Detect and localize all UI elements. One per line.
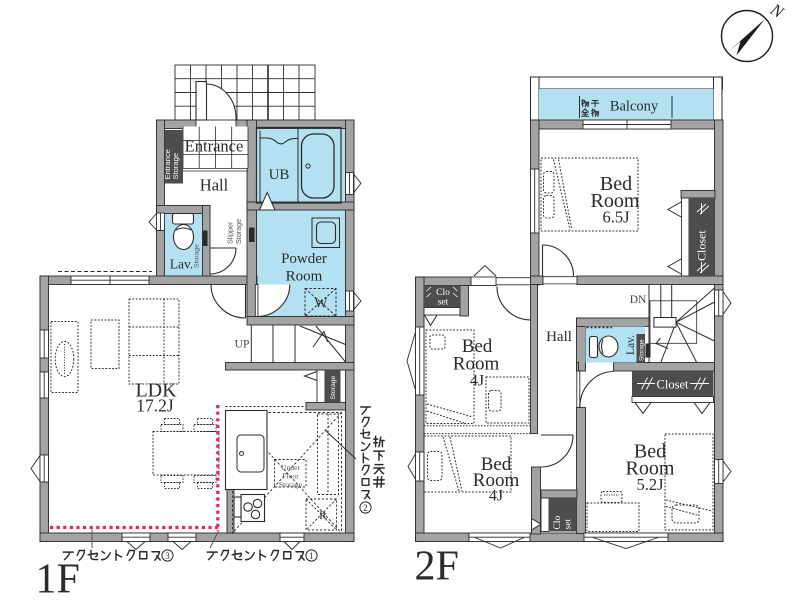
svg-text:Closet: Closet bbox=[657, 378, 689, 392]
svg-text:set: set bbox=[564, 519, 574, 530]
svg-text:Room: Room bbox=[286, 269, 323, 285]
svg-text:6.5J: 6.5J bbox=[602, 208, 630, 227]
svg-text:UP: UP bbox=[235, 339, 250, 351]
svg-text:Entrance: Entrance bbox=[185, 137, 244, 156]
svg-text:R: R bbox=[319, 510, 327, 522]
svg-text:Storage: Storage bbox=[639, 339, 646, 361]
svg-text:Storage: Storage bbox=[234, 219, 243, 244]
svg-text:Closet: Closet bbox=[695, 230, 709, 261]
svg-text:4J: 4J bbox=[470, 373, 484, 390]
svg-text:UB: UB bbox=[269, 167, 290, 183]
svg-text:Balcony: Balcony bbox=[610, 99, 659, 115]
svg-text:1F: 1F bbox=[36, 557, 80, 600]
svg-text:Storage: Storage bbox=[171, 153, 180, 180]
svg-text:W: W bbox=[315, 296, 328, 311]
svg-text:3: 3 bbox=[165, 551, 170, 561]
svg-text:DN: DN bbox=[630, 294, 647, 306]
svg-text:Clo: Clo bbox=[553, 516, 563, 530]
svg-text:1: 1 bbox=[309, 551, 314, 561]
svg-text:17.2J: 17.2J bbox=[136, 396, 174, 416]
svg-text:set: set bbox=[438, 298, 449, 308]
svg-text:Lav.: Lav. bbox=[170, 257, 194, 272]
svg-text:Hall: Hall bbox=[200, 176, 229, 195]
svg-text:Storage: Storage bbox=[279, 480, 303, 489]
svg-text:Lav.: Lav. bbox=[625, 335, 637, 355]
svg-text:Storage: Storage bbox=[194, 244, 201, 268]
svg-text:2: 2 bbox=[363, 503, 368, 513]
svg-text:Clo: Clo bbox=[436, 288, 450, 298]
svg-text:Hall: Hall bbox=[546, 329, 572, 345]
svg-text:Storage: Storage bbox=[330, 375, 337, 399]
svg-text:2F: 2F bbox=[415, 544, 459, 590]
svg-text:4J: 4J bbox=[489, 488, 503, 505]
svg-text:Room: Room bbox=[453, 354, 500, 375]
svg-text:5.2J: 5.2J bbox=[636, 475, 664, 494]
svg-text:Powder: Powder bbox=[281, 251, 327, 267]
